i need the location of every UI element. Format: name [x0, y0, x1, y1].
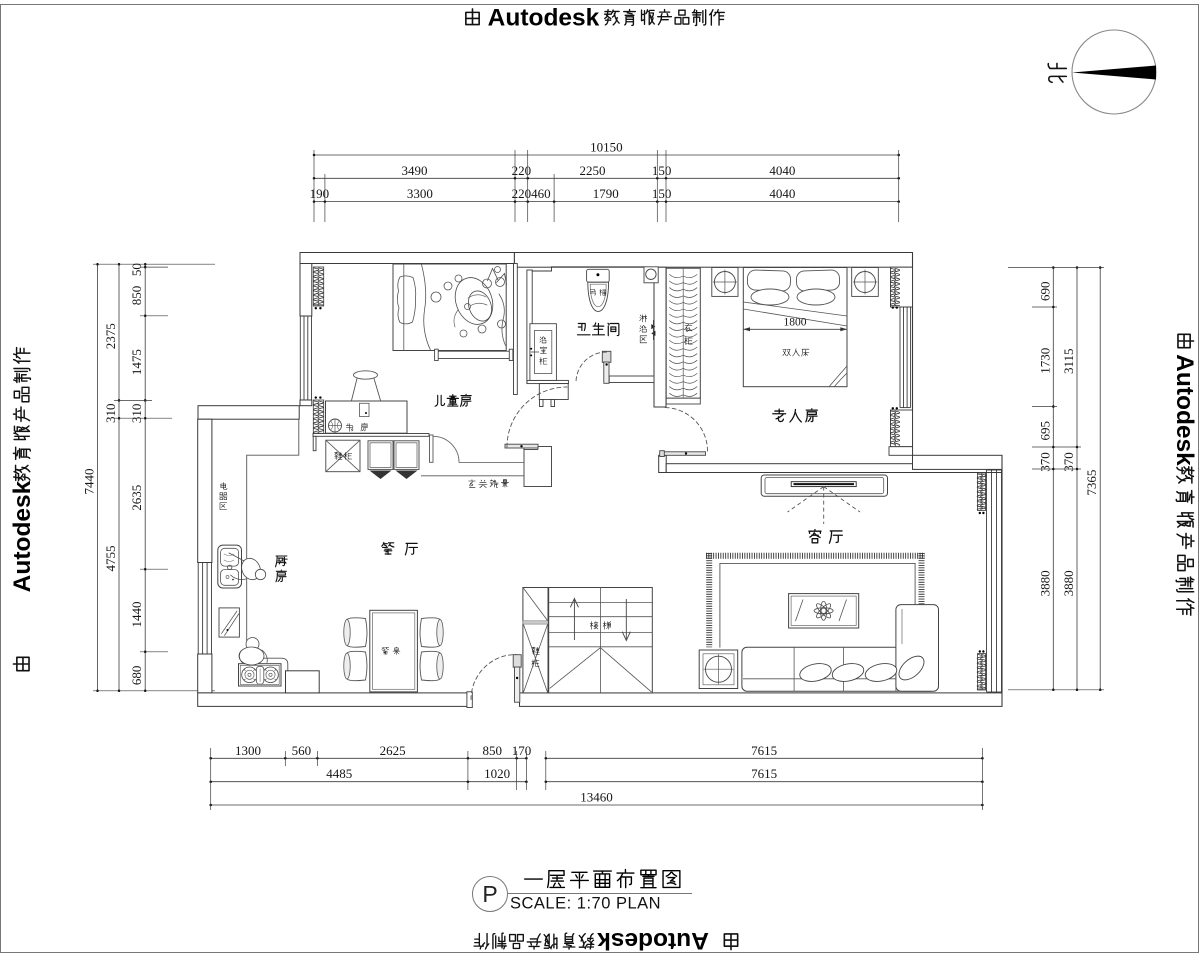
svg-text:3490: 3490	[402, 163, 428, 178]
svg-text:1475: 1475	[129, 349, 144, 375]
svg-text:310: 310	[103, 404, 118, 424]
svg-text:10150: 10150	[590, 140, 623, 155]
svg-text:3115: 3115	[1061, 348, 1076, 374]
svg-text:4040: 4040	[769, 163, 795, 178]
svg-text:220: 220	[512, 186, 532, 201]
svg-text:695: 695	[1037, 421, 1052, 441]
svg-text:1440: 1440	[129, 602, 144, 628]
svg-text:4755: 4755	[103, 546, 118, 572]
svg-text:1730: 1730	[1037, 348, 1052, 374]
svg-text:3300: 3300	[407, 186, 433, 201]
svg-text:560: 560	[292, 743, 312, 758]
svg-text:460: 460	[531, 186, 551, 201]
svg-text:690: 690	[1037, 281, 1052, 301]
svg-text:1790: 1790	[593, 186, 619, 201]
svg-text:7440: 7440	[82, 469, 97, 495]
svg-text:1300: 1300	[235, 743, 261, 758]
svg-text:190: 190	[310, 186, 330, 201]
svg-text:7615: 7615	[751, 743, 777, 758]
svg-text:850: 850	[129, 286, 144, 306]
svg-text:P: P	[482, 881, 497, 907]
svg-text:680: 680	[129, 666, 144, 686]
svg-text:7615: 7615	[751, 766, 777, 781]
svg-text:1800: 1800	[784, 317, 807, 329]
svg-text:50: 50	[129, 263, 144, 276]
svg-text:Autodesk: Autodesk	[488, 5, 600, 32]
svg-text:150: 150	[652, 163, 672, 178]
svg-text:SCALE: 1:70 PLAN: SCALE: 1:70 PLAN	[510, 895, 661, 913]
svg-text:850: 850	[482, 743, 502, 758]
svg-text:2635: 2635	[129, 485, 144, 511]
svg-text:Autodesk: Autodesk	[1171, 354, 1198, 466]
svg-text:1020: 1020	[484, 766, 510, 781]
svg-text:220: 220	[512, 163, 532, 178]
svg-text:Autodesk: Autodesk	[597, 927, 709, 954]
svg-text:Autodesk: Autodesk	[9, 480, 36, 592]
svg-text:310: 310	[129, 404, 144, 424]
svg-text:13460: 13460	[580, 790, 613, 805]
svg-text:2375: 2375	[103, 323, 118, 349]
svg-text:7365: 7365	[1084, 470, 1099, 496]
svg-text:4040: 4040	[769, 186, 795, 201]
svg-text:2625: 2625	[380, 743, 406, 758]
svg-text:2250: 2250	[580, 163, 606, 178]
svg-text:3880: 3880	[1037, 570, 1052, 596]
svg-text:150: 150	[652, 186, 672, 201]
svg-text:3880: 3880	[1061, 570, 1076, 596]
svg-text:4485: 4485	[326, 766, 352, 781]
svg-text:170: 170	[512, 743, 532, 758]
